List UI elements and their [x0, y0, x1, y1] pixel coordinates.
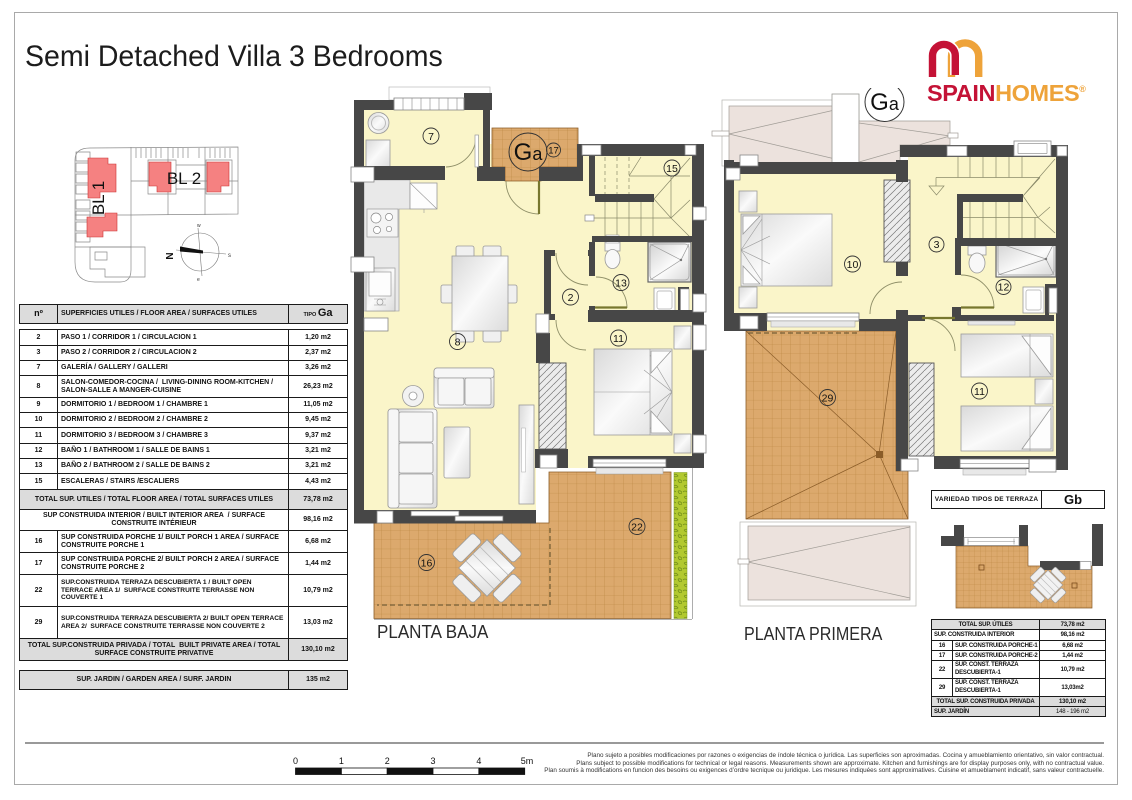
svg-text:16: 16 [421, 558, 433, 570]
svg-text:12: 12 [998, 282, 1010, 294]
svg-text:15: 15 [666, 163, 678, 175]
svg-text:17: 17 [548, 146, 559, 157]
svg-text:11: 11 [613, 333, 624, 345]
svg-text:4: 4 [476, 756, 481, 766]
svg-text:2: 2 [568, 292, 574, 304]
svg-text:13: 13 [615, 278, 627, 290]
svg-text:e: e [197, 277, 200, 283]
svg-text:0: 0 [293, 756, 298, 766]
svg-text:29: 29 [822, 393, 834, 405]
svg-text:2: 2 [385, 756, 390, 766]
svg-text:w: w [197, 223, 201, 229]
svg-text:N: N [165, 252, 176, 259]
svg-text:8: 8 [455, 337, 461, 349]
svg-text:22: 22 [631, 522, 643, 534]
svg-text:BL 2: BL 2 [167, 169, 201, 188]
svg-text:10: 10 [847, 259, 859, 271]
svg-text:3: 3 [430, 756, 435, 766]
svg-text:3: 3 [934, 239, 940, 251]
svg-text:s: s [228, 253, 231, 259]
svg-text:Ga: Ga [514, 139, 544, 166]
svg-text:Ga: Ga [870, 89, 900, 116]
svg-text:11: 11 [974, 386, 985, 398]
svg-text:BL 1: BL 1 [89, 181, 108, 215]
svg-text:7: 7 [428, 131, 434, 143]
svg-text:1: 1 [339, 756, 344, 766]
